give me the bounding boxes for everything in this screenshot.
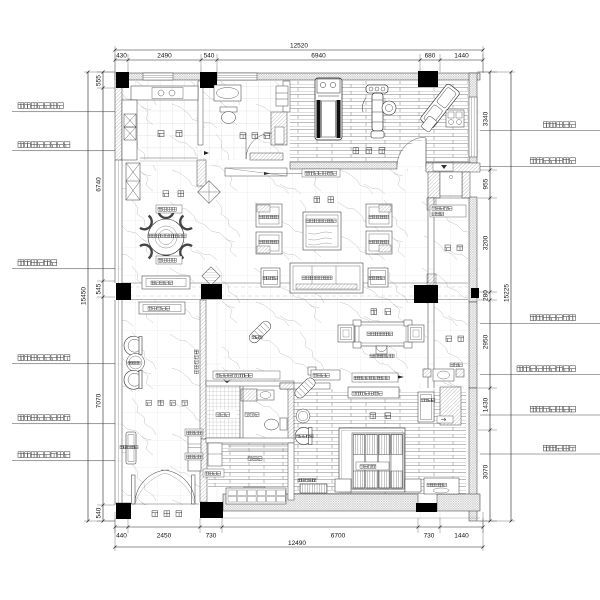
svg-text:6940: 6940 xyxy=(311,53,326,60)
svg-text:540: 540 xyxy=(204,53,215,60)
svg-text:730: 730 xyxy=(424,533,435,540)
svg-text:1430: 1430 xyxy=(483,397,490,412)
svg-text:6740: 6740 xyxy=(96,177,103,192)
svg-text:2450: 2450 xyxy=(157,533,172,540)
svg-text:540: 540 xyxy=(96,507,103,518)
svg-text:730: 730 xyxy=(206,533,217,540)
svg-text:12490: 12490 xyxy=(288,540,306,547)
svg-text:3340: 3340 xyxy=(483,111,490,126)
svg-text:15225: 15225 xyxy=(504,284,511,302)
svg-text:280: 280 xyxy=(483,290,490,301)
svg-text:555: 555 xyxy=(96,75,103,86)
svg-text:545: 545 xyxy=(96,283,103,294)
svg-text:15450: 15450 xyxy=(81,287,88,305)
svg-text:955: 955 xyxy=(483,178,490,189)
svg-text:1440: 1440 xyxy=(454,533,469,540)
svg-text:3200: 3200 xyxy=(483,235,490,250)
svg-text:3070: 3070 xyxy=(483,464,490,479)
svg-text:6700: 6700 xyxy=(331,533,346,540)
svg-text:430: 430 xyxy=(116,53,127,60)
svg-text:440: 440 xyxy=(116,533,127,540)
svg-text:2490: 2490 xyxy=(157,53,172,60)
svg-text:7070: 7070 xyxy=(96,393,103,408)
svg-text:1440: 1440 xyxy=(454,53,469,60)
svg-text:680: 680 xyxy=(425,53,436,60)
svg-text:12520: 12520 xyxy=(290,43,308,50)
svg-text:2950: 2950 xyxy=(483,334,490,349)
